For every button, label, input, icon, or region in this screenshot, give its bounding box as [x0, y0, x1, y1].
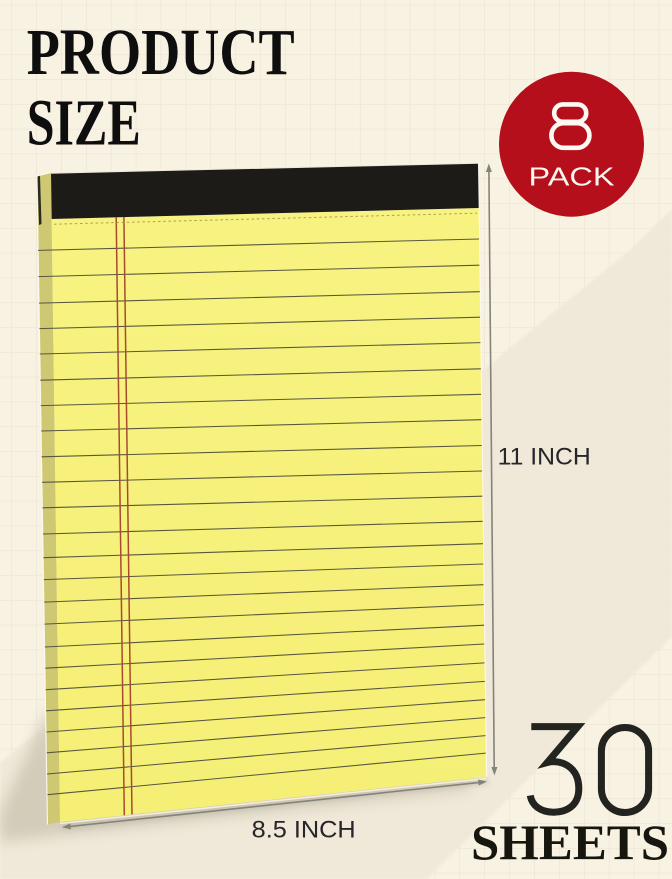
svg-text:SIZE: SIZE	[27, 87, 141, 159]
svg-text:11 INCH: 11 INCH	[498, 443, 591, 470]
svg-text:PRODUCT: PRODUCT	[27, 17, 295, 89]
svg-text:8.5 INCH: 8.5 INCH	[252, 816, 356, 843]
svg-text:SHEETS: SHEETS	[471, 814, 669, 870]
svg-text:PACK: PACK	[529, 163, 615, 191]
